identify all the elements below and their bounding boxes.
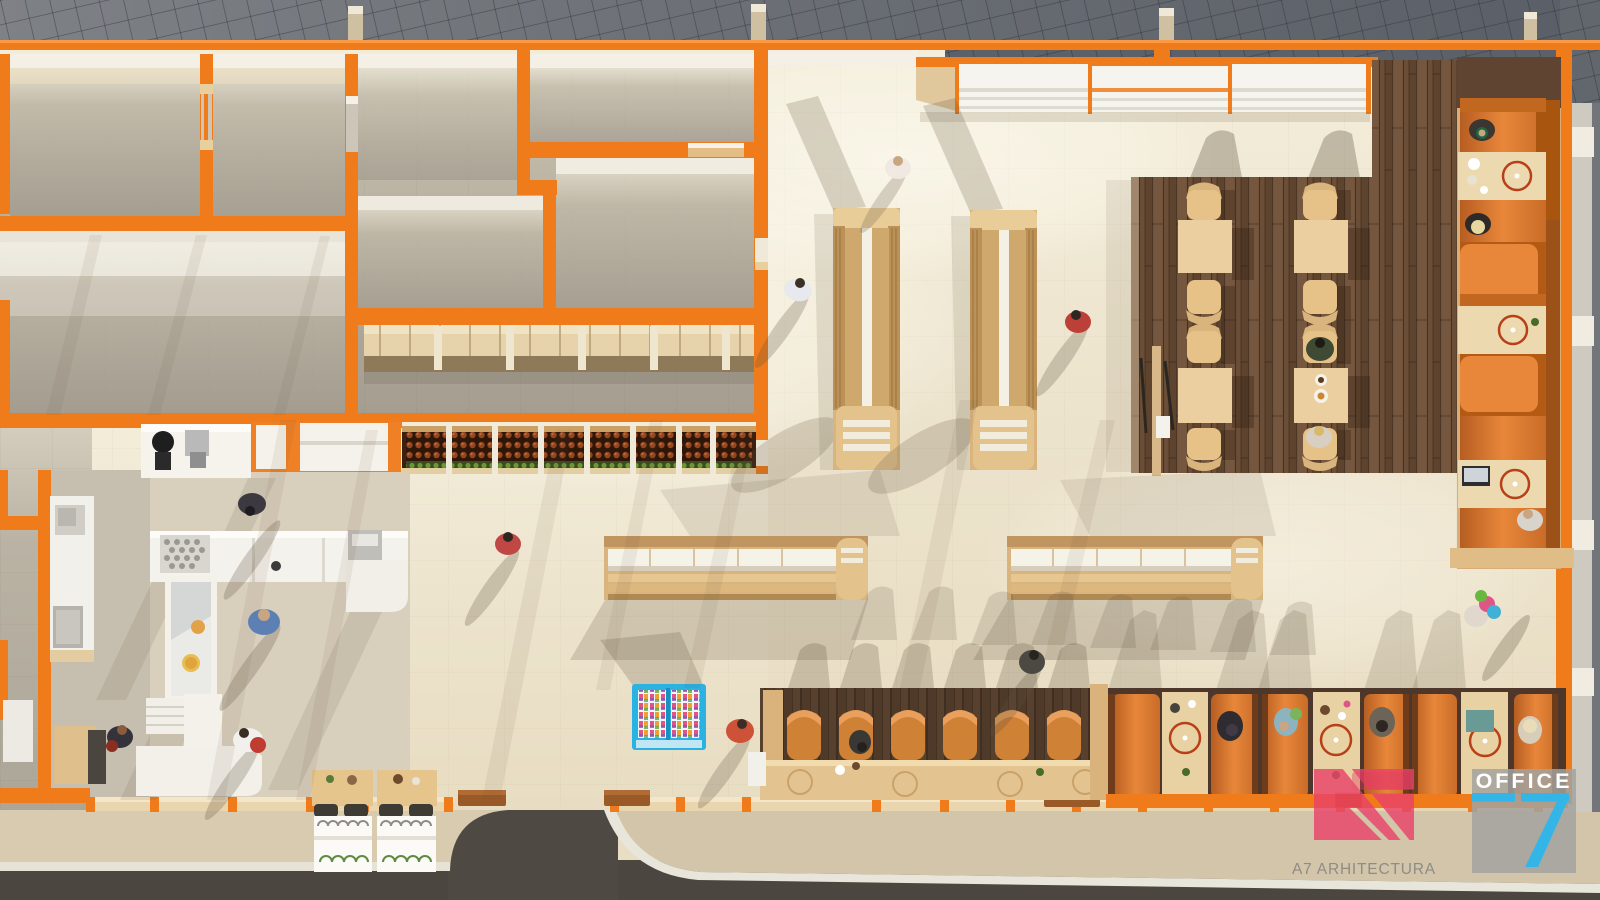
svg-text:OFFICE: OFFICE (1476, 769, 1573, 793)
svg-text:A7 ARHITECTURA: A7 ARHITECTURA (1292, 861, 1436, 878)
